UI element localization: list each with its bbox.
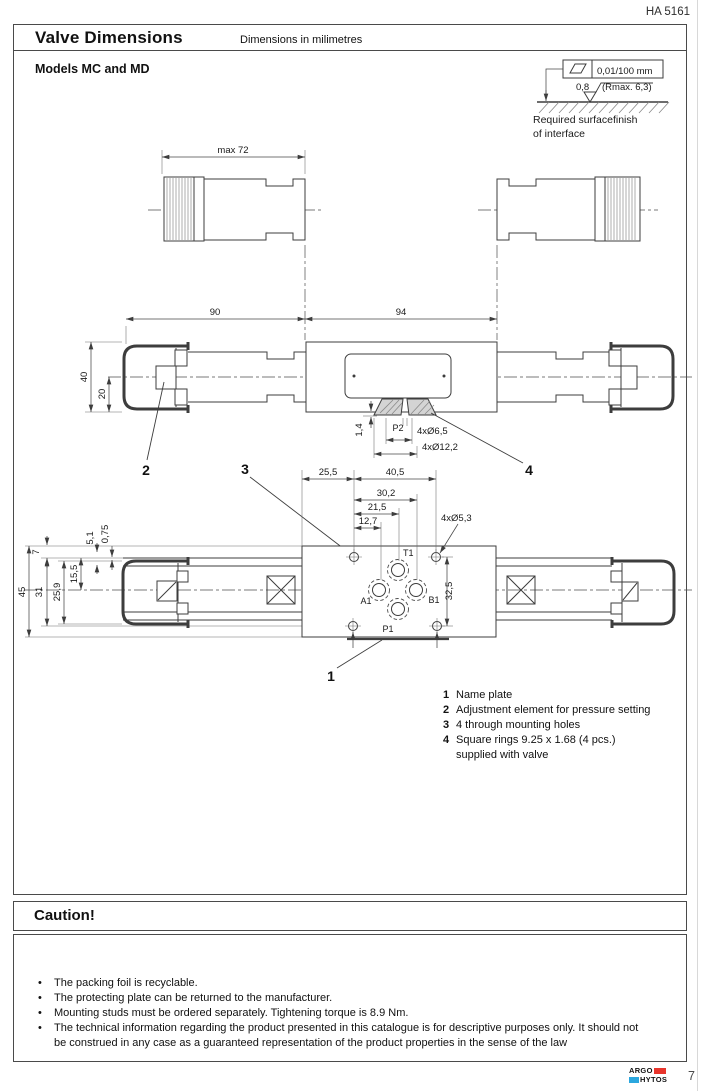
legend-item: 4 Square rings 9.25 x 1.68 (4 pcs.)	[443, 733, 688, 748]
dim-12-7: 12,7	[359, 516, 378, 527]
callouts: 2 3 4 1	[142, 382, 533, 684]
dim-1-4: 1,4	[354, 423, 365, 436]
legend-item: 3 4 through mounting holes	[443, 718, 688, 733]
dim-5-1: 5,1	[85, 531, 96, 544]
dim-20: 20	[97, 389, 108, 400]
caution-bullet: The packing foil is recyclable.	[36, 976, 676, 991]
valve-dimension-drawing: 0,01/100 mm 0,8 (Rmax. 6,3) Required sur…	[0, 55, 701, 690]
port-label-b1: B1	[428, 595, 439, 605]
legend-number: 2	[443, 703, 456, 718]
legend-text: 4 through mounting holes	[456, 718, 580, 733]
legend-text: Name plate	[456, 688, 512, 703]
port-a1	[373, 584, 386, 597]
port-t1	[392, 564, 405, 577]
dim-94: 94	[396, 307, 407, 318]
adjustment-screw	[156, 366, 176, 389]
argo-hytos-logo: ARGO HYTOS	[629, 1067, 671, 1084]
dim-40: 40	[79, 372, 90, 383]
dim-25-9: 25,9	[52, 583, 63, 602]
title-bar: Valve Dimensions Dimensions in milimetre…	[13, 24, 687, 51]
dim-32-5: 32,5	[444, 582, 455, 601]
logo-argo-text: ARGO	[629, 1067, 653, 1075]
page-title: Valve Dimensions	[35, 28, 183, 48]
dim-4xd6-5: 4xØ6,5	[417, 426, 448, 437]
roughness-icon	[584, 92, 596, 102]
legend-item: 2 Adjustment element for pressure settin…	[443, 703, 688, 718]
dim-45: 45	[17, 587, 28, 598]
dim-7: 7	[31, 549, 42, 554]
legend: 1 Name plate 2 Adjustment element for pr…	[443, 688, 688, 763]
caution-bullet-text: The packing foil is recyclable.	[54, 976, 198, 991]
port-label-a1: A1	[360, 596, 371, 606]
port-b1	[410, 584, 423, 597]
document-code: HA 5161	[540, 6, 690, 18]
port-label-p2: P2	[392, 423, 403, 433]
surface-hatching	[539, 102, 669, 113]
legend-item: 1 Name plate	[443, 688, 688, 703]
logo-blue-square-icon	[629, 1077, 639, 1083]
dim-40-5: 40,5	[386, 467, 405, 478]
left-cap	[124, 342, 188, 413]
caution-body-box: The packing foil is recyclable. The prot…	[13, 934, 687, 1062]
dim-15-5: 15,5	[69, 565, 80, 584]
port-p1	[392, 603, 405, 616]
page-number: 7	[680, 1069, 695, 1083]
caution-bullet-text: Mounting studs must be ordered separatel…	[54, 1006, 408, 1021]
caution-bullet: The technical information regarding the …	[36, 1021, 676, 1051]
dim-30-2: 30,2	[377, 488, 396, 499]
caution-bullet: The protecting plate can be returned to …	[36, 991, 676, 1006]
callout-2: 2	[142, 462, 150, 478]
legend-number: 3	[443, 718, 456, 733]
caution-title: Caution!	[34, 907, 95, 924]
dim-0-75: 0,75	[100, 525, 111, 544]
rmax-value: (Rmax. 6,3)	[602, 82, 652, 93]
caution-bullet-list: The packing foil is recyclable. The prot…	[36, 976, 676, 1051]
surface-caption-2: of interface	[533, 128, 585, 140]
flatness-icon	[570, 64, 586, 73]
surface-finish-symbol: 0,01/100 mm 0,8 (Rmax. 6,3) Required sur…	[533, 60, 669, 140]
flatness-value: 0,01/100 mm	[597, 66, 653, 77]
right-cap-plan	[611, 557, 674, 628]
port-label-p1: P1	[382, 624, 393, 634]
legend-number: 1	[443, 688, 456, 703]
caution-bullet: Mounting studs must be ordered separatel…	[36, 1006, 676, 1021]
side-view: 90 94	[79, 307, 692, 458]
dim-21-5: 21,5	[368, 502, 387, 513]
plan-view: T1 A1 B1 P1 25,5 40,5 30,2 21,5	[17, 467, 692, 648]
dim-4xd12-2: 4xØ12,2	[422, 442, 458, 453]
page-subtitle: Dimensions in milimetres	[240, 34, 362, 46]
caution-bullet-text: The technical information regarding the …	[54, 1021, 639, 1051]
adjustment-screw	[621, 366, 637, 389]
left-cap-plan	[123, 557, 188, 628]
roughness-value: 0,8	[576, 82, 589, 93]
legend-number: 4	[443, 733, 456, 748]
legend-text-continued: supplied with valve	[443, 748, 688, 763]
logo-hytos-text: HYTOS	[640, 1076, 667, 1084]
dim-25-5: 25,5	[319, 467, 338, 478]
legend-text: Square rings 9.25 x 1.68 (4 pcs.)	[456, 733, 616, 748]
callout-3: 3	[241, 461, 249, 477]
dim-31: 31	[34, 587, 45, 598]
dim-4xd5-3: 4xØ5,3	[441, 513, 472, 524]
caution-header-box: Caution!	[13, 901, 687, 931]
callout-4: 4	[525, 462, 533, 478]
logo-red-square-icon	[654, 1068, 666, 1074]
callout-1: 1	[327, 668, 335, 684]
dim-max72: max 72	[217, 145, 248, 156]
surface-caption-1: Required surfacefinish	[533, 114, 638, 126]
caution-bullet-text: The protecting plate can be returned to …	[54, 991, 332, 1006]
port-label-t1: T1	[403, 548, 414, 558]
dim-90: 90	[210, 307, 221, 318]
right-cap	[609, 342, 673, 413]
legend-text: Adjustment element for pressure setting	[456, 703, 650, 718]
